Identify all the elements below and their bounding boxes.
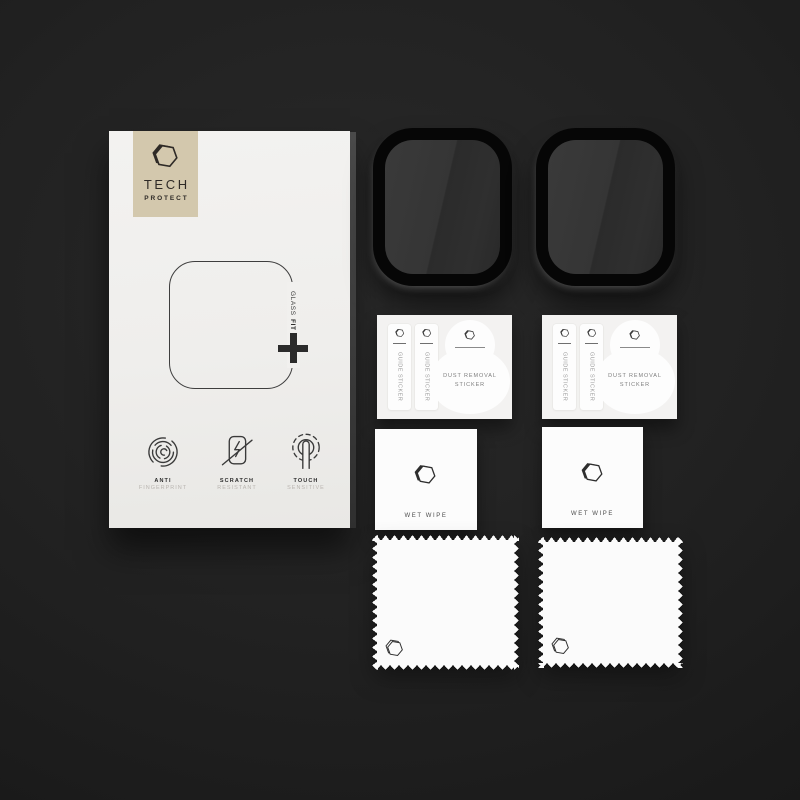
dust-removal-sticker: DUST REMOVAL STICKER — [430, 320, 510, 414]
hexagon-logo-icon — [413, 463, 439, 486]
hexagon-logo-icon — [384, 639, 406, 658]
feature-subtitle: FINGERPRINT — [128, 485, 198, 491]
hexagon-logo-icon — [580, 461, 606, 484]
dust-sticker-label: DUST REMOVAL — [595, 373, 675, 379]
scratch-resistant-icon — [217, 432, 257, 472]
fit-word: FIT — [289, 319, 296, 331]
glass-word: GLASS — [289, 291, 296, 316]
sticker-card-1: GUIDE STICKER GUIDE STICKER DUST REMOVAL… — [377, 315, 512, 419]
hexagon-logo-icon — [464, 329, 477, 341]
touch-sensitive-icon — [286, 432, 326, 472]
hexagon-logo-icon — [394, 328, 405, 338]
feature-subtitle: RESISTANT — [202, 485, 272, 491]
watch-glass-protector-2 — [536, 128, 675, 286]
dust-sticker-label: STICKER — [595, 382, 675, 388]
glass-fit-label: GLASSFIT — [284, 286, 301, 336]
dust-sticker-label: STICKER — [430, 382, 510, 388]
divider-line — [393, 343, 406, 344]
hexagon-logo-icon — [629, 329, 642, 341]
divider-line — [558, 343, 571, 344]
plus-icon — [278, 333, 308, 363]
feature-row: ANTI FINGERPRINT SCRATCH RESISTANT TOU — [109, 432, 350, 496]
feature-anti-fingerprint: ANTI FINGERPRINT — [128, 432, 198, 491]
feature-scratch-resistant: SCRATCH RESISTANT — [202, 432, 272, 491]
feature-title: SCRATCH — [202, 478, 272, 484]
guide-sticker-strip: GUIDE STICKER — [553, 324, 576, 410]
feature-title: TOUCH — [271, 478, 341, 484]
brand-name: TECH — [133, 177, 198, 192]
hexagon-logo-icon — [550, 637, 572, 656]
box-side-edge — [350, 132, 356, 528]
product-box: TECH PROTECT GLASSFIT ANTI FINGERPRINT — [109, 131, 350, 528]
feature-subtitle: SENSITIVE — [271, 485, 341, 491]
wet-wipe-label: WET WIPE — [542, 511, 643, 517]
protector-screen — [385, 140, 500, 274]
dust-sticker-label: DUST REMOVAL — [430, 373, 510, 379]
sticker-card-2: GUIDE STICKER GUIDE STICKER DUST REMOVAL… — [542, 315, 677, 419]
microfiber-cloth-2 — [538, 537, 683, 668]
watch-shape-outline — [169, 261, 293, 389]
wet-wipe-label: WET WIPE — [375, 513, 477, 519]
microfiber-cloth-1 — [372, 535, 519, 670]
divider-line — [455, 347, 485, 348]
fingerprint-icon — [143, 432, 183, 472]
protector-screen — [548, 140, 663, 274]
tech-protect-logo-icon — [150, 142, 182, 170]
feature-touch-sensitive: TOUCH SENSITIVE — [271, 432, 341, 491]
brand-badge: TECH PROTECT — [133, 131, 198, 217]
divider-line — [620, 347, 650, 348]
hexagon-logo-icon — [559, 328, 570, 338]
watch-glass-protector-1 — [373, 128, 512, 286]
wet-wipe-packet-1: WET WIPE — [375, 429, 477, 530]
dust-removal-sticker: DUST REMOVAL STICKER — [595, 320, 675, 414]
guide-sticker-label: GUIDE STICKER — [388, 348, 411, 405]
product-photo-scene: TECH PROTECT GLASSFIT ANTI FINGERPRINT — [0, 0, 800, 800]
guide-sticker-label: GUIDE STICKER — [553, 348, 576, 405]
brand-subname: PROTECT — [133, 195, 198, 202]
wet-wipe-packet-2: WET WIPE — [542, 427, 643, 528]
feature-title: ANTI — [128, 478, 198, 484]
guide-sticker-strip: GUIDE STICKER — [388, 324, 411, 410]
